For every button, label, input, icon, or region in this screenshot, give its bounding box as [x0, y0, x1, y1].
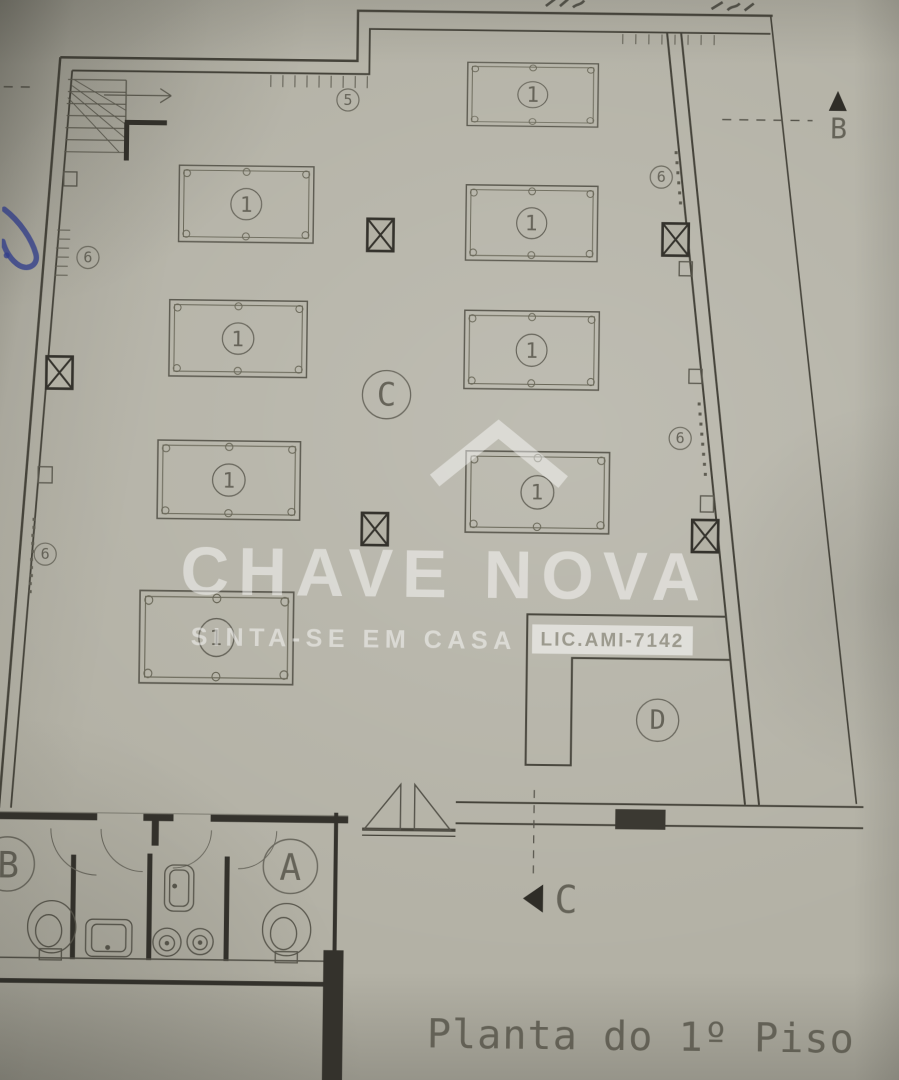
- wc-a-label: A: [279, 846, 302, 889]
- outer-walls: [0, 6, 873, 841]
- marker-6-label: 6: [676, 429, 685, 447]
- marker-6-label: 6: [657, 168, 666, 186]
- section-marker-c: C: [523, 877, 578, 922]
- wc-b-marker: B: [0, 836, 35, 891]
- toilet: [27, 900, 76, 960]
- bathroom-fixtures: [27, 863, 311, 963]
- zone-d-marker: D: [636, 699, 679, 742]
- section-b-label: B: [830, 112, 847, 145]
- stair-direction-arrow: [104, 88, 171, 103]
- table-marker: 1: [525, 210, 538, 235]
- column-marker: [662, 223, 688, 255]
- section-marker-b: B: [828, 91, 847, 146]
- marker-6-label: 6: [41, 545, 50, 563]
- watermark: CHAVE NOVA SINTA-SE EM CASA LIC.AMI-7142: [180, 425, 711, 657]
- marker-6: 6: [77, 246, 99, 268]
- table-marker: 1: [525, 338, 538, 363]
- table-marker: 1: [526, 82, 539, 107]
- section-b-arrow-icon: [829, 91, 847, 111]
- roof-logo-icon: [435, 428, 564, 482]
- watermark-brand: CHAVE NOVA: [180, 534, 710, 615]
- stairs: [64, 79, 171, 161]
- door-swing-arcs: [50, 828, 276, 877]
- circled-count-markers: 5 6 6 6 6: [34, 85, 695, 573]
- toilet: [262, 903, 311, 963]
- section-c-label: C: [554, 878, 578, 922]
- basin: [153, 928, 181, 956]
- marker-6: 6: [669, 427, 691, 449]
- license-number: LIC.AMI-7142: [540, 630, 684, 653]
- marker-6: 6: [34, 543, 56, 565]
- column-marker: [46, 356, 72, 388]
- marker-6: 6: [650, 166, 672, 188]
- cistern: [164, 865, 194, 912]
- bathroom-block: B A: [0, 808, 348, 1080]
- zone-c-marker: C: [362, 370, 411, 419]
- section-c-arrow-icon: [523, 884, 543, 912]
- wc-a-marker: A: [263, 839, 318, 894]
- table-marker: 1: [240, 192, 253, 217]
- marker-6-label: 6: [83, 248, 92, 266]
- floor-plan-drawing: 1 1 1 1 1 1 1 1 B C: [0, 0, 899, 1080]
- marker-5: 5: [337, 89, 359, 111]
- page-title: Planta do 1º Piso: [427, 1012, 855, 1063]
- entrance-double-door: [364, 784, 451, 830]
- zone-c-label: C: [377, 376, 397, 414]
- watermark-tagline: SINTA-SE EM CASA: [191, 623, 517, 655]
- pen-annotation: [3, 209, 37, 267]
- wc-b-label: B: [0, 843, 19, 886]
- basin: [187, 928, 213, 954]
- section-lines: [0, 87, 813, 880]
- marker-5-label: 5: [343, 91, 352, 109]
- thick-corner-wall: [322, 950, 344, 1080]
- table-marker: 1: [231, 326, 244, 351]
- zone-d-label: D: [649, 705, 666, 736]
- cut-off-text-fragments: [546, 0, 754, 11]
- table-marker: 1: [530, 479, 543, 504]
- table-marker: 1: [222, 467, 235, 492]
- sink: [85, 919, 132, 957]
- floor-plan-photo: 1 1 1 1 1 1 1 1 B C: [0, 0, 899, 1080]
- column-marker: [367, 219, 393, 251]
